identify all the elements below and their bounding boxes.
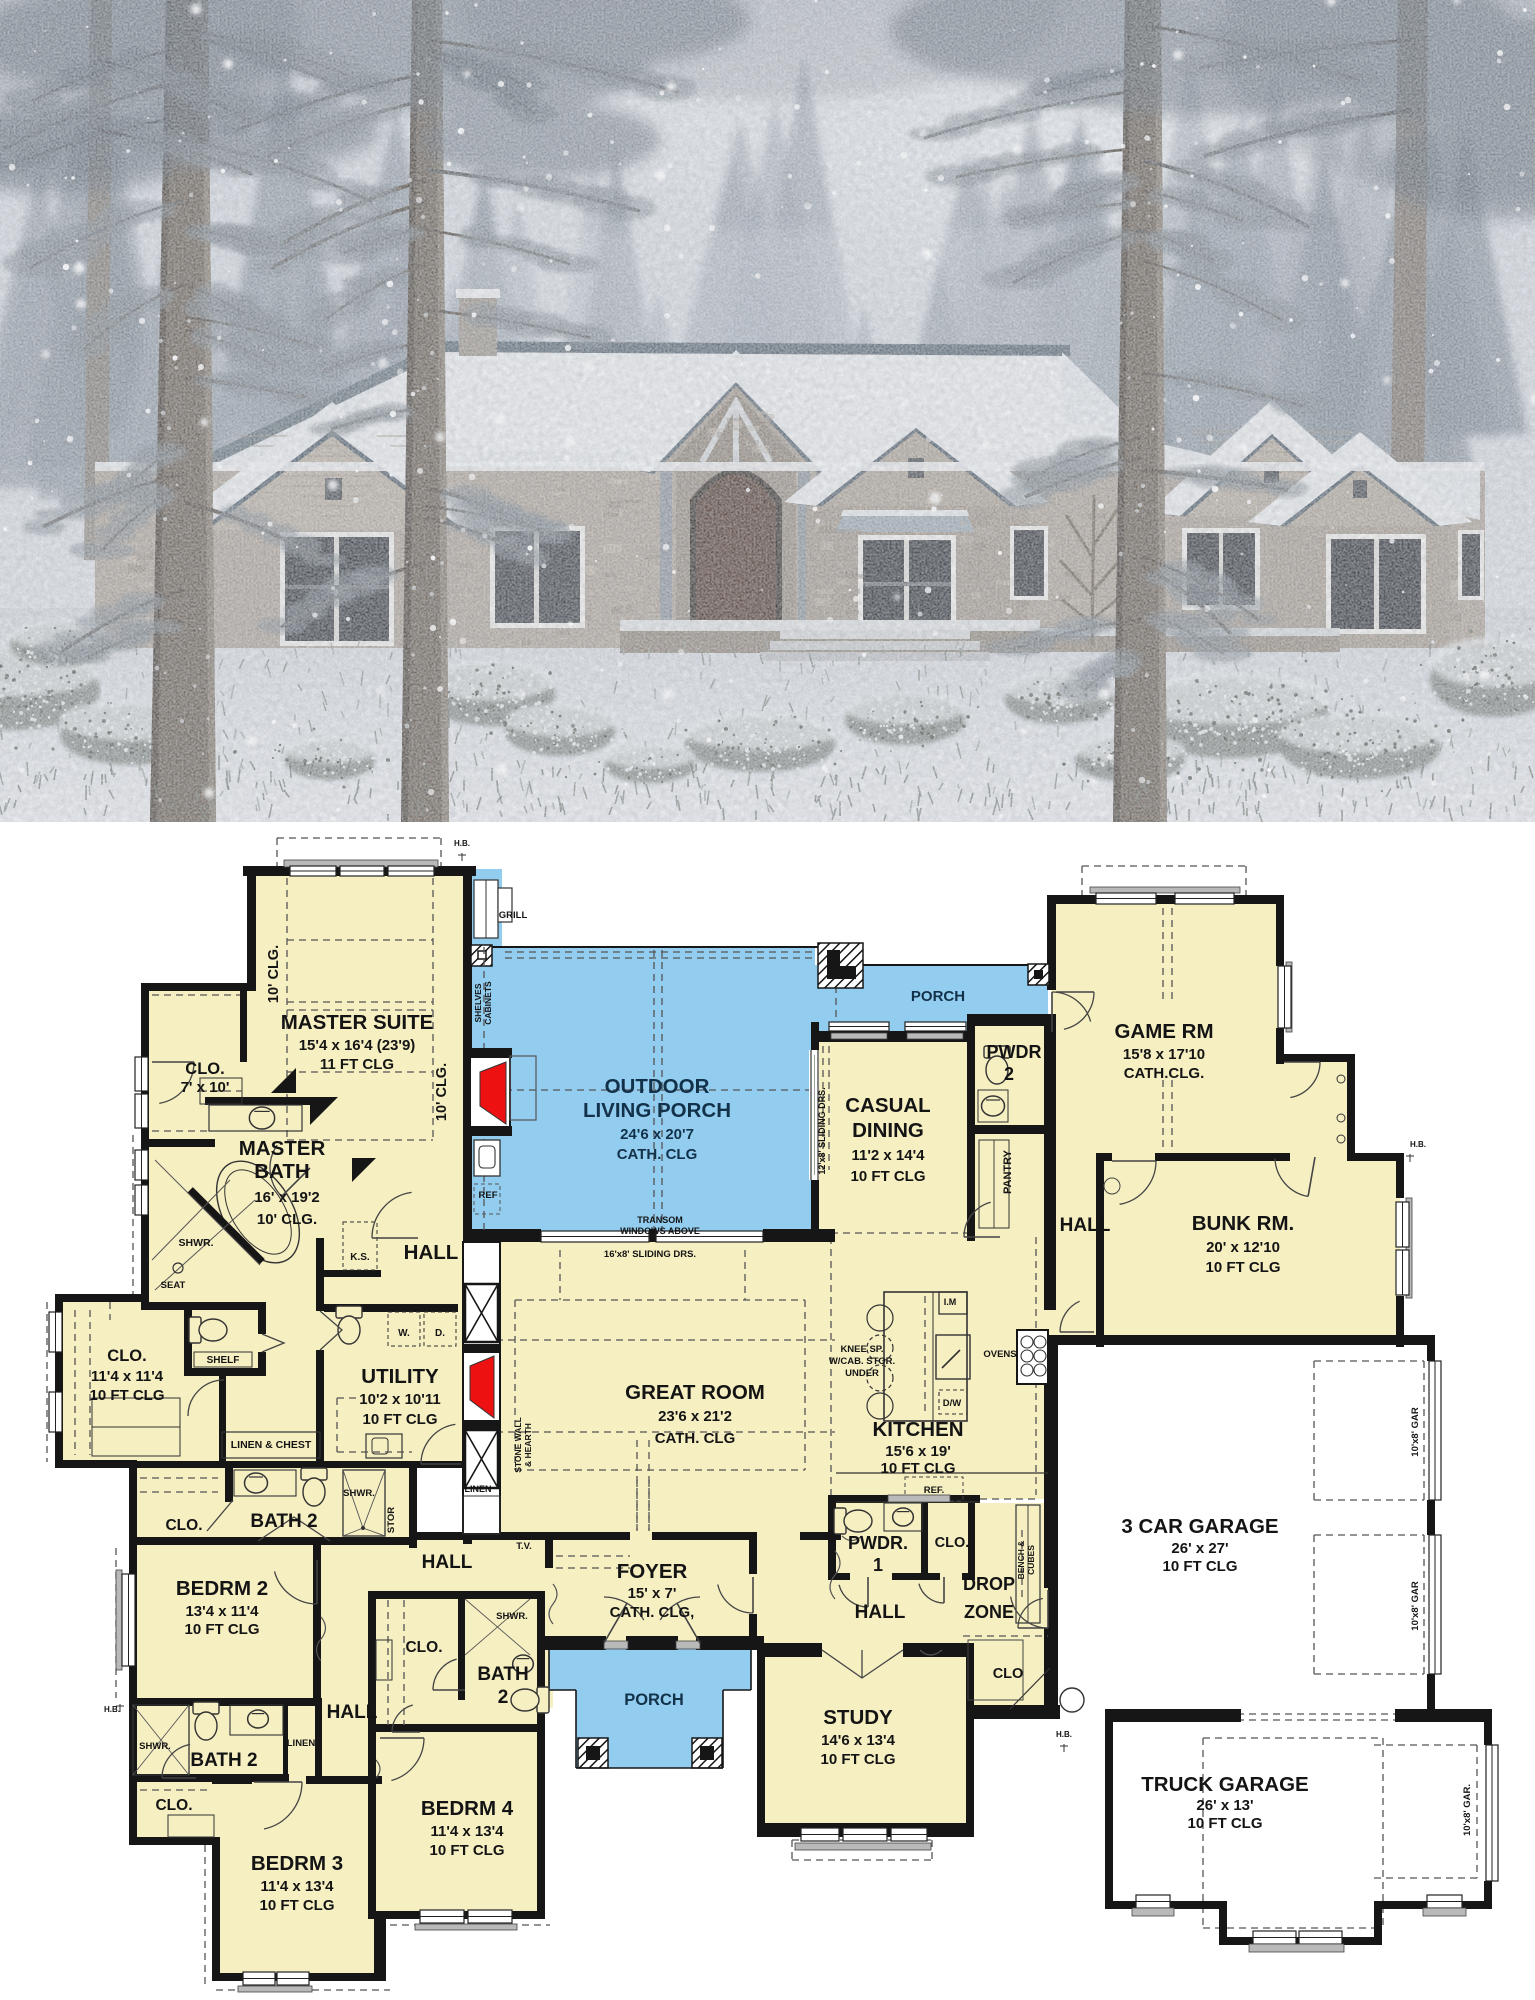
svg-text:BEDRM 2: BEDRM 2 <box>176 1577 268 1600</box>
svg-text:CABINETS: CABINETS <box>483 981 493 1025</box>
svg-text:BATH: BATH <box>254 1160 309 1183</box>
svg-text:OVENS: OVENS <box>983 1349 1016 1360</box>
svg-text:BATH 2: BATH 2 <box>190 1750 257 1771</box>
svg-text:MASTER: MASTER <box>239 1137 326 1160</box>
svg-text:REF: REF <box>479 1190 498 1201</box>
svg-text:BATH: BATH <box>477 1664 528 1685</box>
svg-text:PORCH: PORCH <box>624 1691 684 1709</box>
svg-text:11'4 x 13'4: 11'4 x 13'4 <box>430 1823 504 1840</box>
svg-text:15'4 x 16'4 (23'9): 15'4 x 16'4 (23'9) <box>299 1037 416 1054</box>
svg-text:SHWR.: SHWR. <box>179 1237 214 1249</box>
svg-text:D/W: D/W <box>943 1398 962 1409</box>
svg-text:HALL: HALL <box>1060 1215 1111 1236</box>
svg-text:WINDOWS ABOVE: WINDOWS ABOVE <box>620 1226 700 1236</box>
svg-text:11'4 x 13'4: 11'4 x 13'4 <box>260 1878 334 1895</box>
svg-text:10 FT CLG: 10 FT CLG <box>1187 1815 1262 1832</box>
svg-text:CLO.: CLO. <box>165 1517 202 1534</box>
svg-text:10'x8' GAR: 10'x8' GAR <box>1410 1407 1421 1457</box>
svg-text:LINEN: LINEN <box>465 1484 492 1494</box>
svg-text:11'2 x 14'4: 11'2 x 14'4 <box>851 1147 925 1164</box>
svg-text:TRUCK GARAGE: TRUCK GARAGE <box>1141 1773 1308 1796</box>
svg-text:HALL: HALL <box>404 1241 459 1264</box>
svg-text:BATH 2: BATH 2 <box>250 1511 317 1532</box>
svg-text:FOYER: FOYER <box>617 1560 688 1583</box>
svg-text:UTILITY: UTILITY <box>361 1365 439 1388</box>
svg-text:10' CLG.: 10' CLG. <box>434 1063 450 1121</box>
svg-text:DROP: DROP <box>963 1574 1015 1594</box>
svg-text:16' x 19'2: 16' x 19'2 <box>254 1189 320 1206</box>
svg-text:10 FT CLG: 10 FT CLG <box>362 1411 437 1428</box>
svg-text:STOR: STOR <box>386 1507 397 1533</box>
svg-text:GRILL: GRILL <box>499 910 528 921</box>
svg-text:SHWR.: SHWR. <box>496 1611 528 1622</box>
svg-text:DINING: DINING <box>852 1119 924 1142</box>
svg-text:11'4 x 11'4: 11'4 x 11'4 <box>91 1368 164 1385</box>
svg-text:CATH. CLG: CATH. CLG <box>617 1146 698 1163</box>
svg-text:H.B.: H.B. <box>1410 1140 1426 1149</box>
svg-text:T.V.: T.V. <box>516 1541 532 1552</box>
svg-text:I.M: I.M <box>944 1297 957 1307</box>
svg-text:PWDR: PWDR <box>987 1042 1042 1062</box>
svg-text:SEAT: SEAT <box>161 1280 186 1291</box>
svg-text:ZONE: ZONE <box>964 1602 1014 1622</box>
svg-text:CLO.: CLO. <box>935 1535 970 1551</box>
svg-text:CATH. CLG,: CATH. CLG, <box>610 1604 695 1621</box>
svg-text:10 FT CLG: 10 FT CLG <box>850 1168 925 1185</box>
svg-text:CATH.CLG.: CATH.CLG. <box>1124 1065 1205 1082</box>
svg-text:15'8 x 17'10: 15'8 x 17'10 <box>1123 1046 1205 1063</box>
svg-text:D.: D. <box>435 1328 445 1339</box>
svg-text:KNEE SP.: KNEE SP. <box>840 1344 883 1355</box>
svg-text:12'x8' SLIDING DRS.: 12'x8' SLIDING DRS. <box>817 1087 827 1174</box>
svg-text:W/CAB. STOR.: W/CAB. STOR. <box>829 1356 895 1367</box>
svg-text:K.S.: K.S. <box>350 1252 370 1263</box>
svg-text:W.: W. <box>398 1328 410 1339</box>
svg-text:BEDRM 4: BEDRM 4 <box>421 1797 514 1820</box>
svg-text:PANTRY: PANTRY <box>1002 1149 1014 1194</box>
svg-text:2: 2 <box>498 1687 509 1708</box>
svg-text:SHWR.: SHWR. <box>139 1741 171 1752</box>
svg-text:1: 1 <box>873 1555 883 1575</box>
svg-text:10 FT CLG: 10 FT CLG <box>259 1897 334 1914</box>
svg-text:10'x8' GAR: 10'x8' GAR <box>1410 1581 1421 1631</box>
svg-text:LIVING PORCH: LIVING PORCH <box>583 1099 731 1122</box>
svg-text:GAME RM: GAME RM <box>1114 1020 1213 1043</box>
svg-text:PWDR.: PWDR. <box>848 1533 908 1553</box>
svg-text:10 FT CLG: 10 FT CLG <box>820 1751 895 1768</box>
svg-text:OUTDOOR: OUTDOOR <box>605 1075 710 1098</box>
svg-text:CUBES: CUBES <box>1026 1545 1036 1575</box>
svg-text:SHELF: SHELF <box>207 1355 240 1366</box>
svg-text:BEDRM 3: BEDRM 3 <box>251 1852 343 1875</box>
svg-text:26' x 13': 26' x 13' <box>1196 1797 1253 1814</box>
svg-text:BUNK RM.: BUNK RM. <box>1192 1212 1295 1235</box>
svg-text:REF.: REF. <box>924 1485 945 1496</box>
svg-text:10' CLG.: 10' CLG. <box>257 1211 317 1228</box>
svg-text:23'6 x 21'2: 23'6 x 21'2 <box>658 1408 732 1425</box>
svg-text:15' x 7': 15' x 7' <box>628 1585 677 1602</box>
svg-text:CLO.: CLO. <box>155 1797 192 1814</box>
svg-text:LINEN: LINEN <box>287 1738 316 1749</box>
svg-text:10 FT CLG: 10 FT CLG <box>184 1621 259 1638</box>
svg-text:PORCH: PORCH <box>911 988 965 1005</box>
svg-text:GREAT ROOM: GREAT ROOM <box>625 1381 765 1404</box>
svg-text:UNDER: UNDER <box>845 1368 879 1379</box>
svg-text:3 CAR GARAGE: 3 CAR GARAGE <box>1121 1515 1278 1538</box>
svg-text:10'x8' GAR.: 10'x8' GAR. <box>1462 1784 1473 1836</box>
svg-text:MASTER SUITE: MASTER SUITE <box>281 1011 434 1034</box>
svg-text:10 FT CLG: 10 FT CLG <box>880 1460 955 1477</box>
svg-text:7' x 10': 7' x 10' <box>181 1079 230 1096</box>
svg-text:10 FT CLG: 10 FT CLG <box>89 1387 164 1404</box>
svg-text:26' x 27': 26' x 27' <box>1171 1540 1228 1557</box>
svg-text:2: 2 <box>1004 1064 1014 1084</box>
svg-text:24'6 x 20'7: 24'6 x 20'7 <box>620 1126 694 1143</box>
svg-text:H.B.: H.B. <box>104 1705 120 1714</box>
svg-text:KITCHEN: KITCHEN <box>872 1418 963 1441</box>
svg-text:TRANSOM: TRANSOM <box>637 1215 683 1225</box>
svg-text:HALL: HALL <box>855 1602 906 1623</box>
svg-text:11 FT CLG: 11 FT CLG <box>320 1056 394 1073</box>
svg-text:13'4 x 11'4: 13'4 x 11'4 <box>185 1603 259 1620</box>
svg-text:CLO: CLO <box>993 1666 1024 1682</box>
svg-text:CATH. CLG: CATH. CLG <box>655 1430 736 1447</box>
svg-text:CLO.: CLO. <box>405 1639 442 1656</box>
svg-text:SHWR.: SHWR. <box>343 1488 375 1499</box>
svg-text:10'2 x 10'11: 10'2 x 10'11 <box>359 1391 440 1408</box>
svg-text:10 FT CLG: 10 FT CLG <box>1205 1259 1280 1276</box>
svg-text:STUDY: STUDY <box>823 1706 893 1729</box>
svg-text:HALL: HALL <box>327 1702 378 1723</box>
svg-text:SHELVES: SHELVES <box>473 983 483 1022</box>
svg-text:CLO.: CLO. <box>107 1347 146 1365</box>
svg-text:10' CLG.: 10' CLG. <box>266 945 282 1003</box>
svg-text:10 FT CLG: 10 FT CLG <box>429 1842 504 1859</box>
svg-text:CASUAL: CASUAL <box>845 1094 930 1117</box>
svg-text:16'x8' SLIDING DRS.: 16'x8' SLIDING DRS. <box>604 1249 696 1260</box>
svg-text:& HEARTH: & HEARTH <box>523 1423 533 1467</box>
svg-text:HALL: HALL <box>422 1552 473 1573</box>
svg-text:15'6 x 19': 15'6 x 19' <box>885 1443 951 1460</box>
svg-text:LINEN & CHEST: LINEN & CHEST <box>231 1439 312 1451</box>
svg-text:STONE WALL: STONE WALL <box>513 1417 523 1473</box>
svg-text:20' x 12'10: 20' x 12'10 <box>1206 1239 1280 1256</box>
svg-text:H.B.: H.B. <box>454 839 470 848</box>
svg-text:10 FT CLG: 10 FT CLG <box>1162 1558 1237 1575</box>
svg-text:BENCH &: BENCH & <box>1016 1541 1026 1580</box>
svg-text:CLO.: CLO. <box>185 1060 224 1078</box>
svg-text:14'6 x 13'4: 14'6 x 13'4 <box>821 1732 896 1749</box>
svg-text:H.B.: H.B. <box>1056 1730 1072 1739</box>
